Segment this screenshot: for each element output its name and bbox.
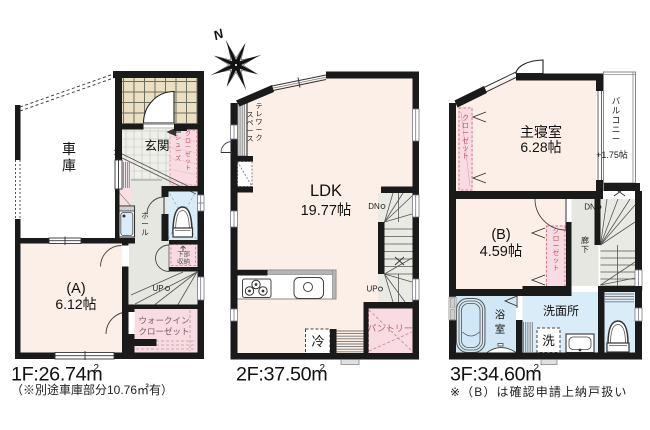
svg-text:ロ: ロ	[462, 123, 469, 130]
svg-text:+1.75帖: +1.75帖	[596, 149, 628, 160]
svg-text:19.77帖: 19.77帖	[301, 202, 352, 219]
svg-text:玄関: 玄関	[144, 138, 169, 153]
svg-text:ト: ト	[185, 166, 191, 172]
svg-text:ー: ー	[462, 130, 469, 137]
svg-text:コ: コ	[612, 115, 621, 125]
svg-text:ゼ: ゼ	[185, 150, 191, 158]
svg-text:※（B）は確認申請上納戸扱い: ※（B）は確認申請上納戸扱い	[450, 384, 627, 399]
svg-text:パントリー: パントリー	[367, 324, 412, 334]
svg-text:4.59帖: 4.59帖	[480, 243, 523, 260]
svg-text:ー: ー	[612, 134, 621, 144]
svg-text:ッ: ッ	[462, 145, 469, 152]
svg-text:シ: シ	[175, 136, 181, 142]
svg-text:ゼ: ゼ	[553, 248, 560, 257]
svg-text:ク: ク	[256, 134, 263, 142]
svg-text:ペ: ペ	[247, 119, 254, 127]
svg-text:2: 2	[94, 363, 100, 374]
svg-text:室: 室	[495, 323, 506, 336]
svg-text:テ: テ	[256, 102, 263, 110]
svg-text:6.12帖: 6.12帖	[55, 296, 96, 312]
svg-text:UP: UP	[152, 284, 163, 293]
svg-text:バ: バ	[612, 96, 621, 106]
svg-text:クローゼット: クローゼット	[138, 327, 189, 337]
svg-text:ル: ル	[612, 106, 621, 116]
svg-text:DN: DN	[368, 202, 380, 211]
svg-text:ロ: ロ	[553, 235, 560, 242]
svg-text:2: 2	[320, 363, 326, 374]
svg-text:下部: 下部	[177, 249, 191, 258]
svg-text:ー: ー	[256, 127, 263, 134]
svg-text:ズ: ズ	[175, 154, 181, 162]
svg-text:ー: ー	[553, 243, 560, 250]
svg-text:ル: ル	[141, 228, 149, 237]
svg-text:ュ: ュ	[175, 143, 181, 149]
svg-text:下: 下	[581, 245, 589, 254]
svg-text:ニ: ニ	[612, 125, 621, 135]
svg-text:（※別途車庫部分10.76㎡有）: （※別途車庫部分10.76㎡有）	[11, 382, 173, 397]
svg-text:洗: 洗	[542, 334, 555, 348]
svg-text:廊: 廊	[581, 235, 589, 245]
svg-text:洗面所: 洗面所	[543, 304, 579, 318]
svg-text:2F:37.50m: 2F:37.50m	[236, 364, 327, 386]
svg-text:(B): (B)	[491, 227, 510, 243]
svg-text:ロ: ロ	[185, 139, 191, 145]
svg-text:ク: ク	[462, 114, 469, 122]
svg-text:UP: UP	[366, 285, 377, 294]
svg-text:ス: ス	[247, 111, 254, 119]
svg-text:浴: 浴	[495, 309, 506, 321]
svg-text:ー: ー	[185, 146, 191, 152]
svg-text:(A): (A)	[66, 281, 85, 297]
svg-text:3F:34.60m: 3F:34.60m	[450, 364, 541, 386]
svg-text:レ: レ	[256, 111, 263, 118]
svg-text:ウォークイン: ウォークイン	[138, 316, 189, 326]
svg-text:収納: 収納	[177, 257, 190, 266]
svg-text:ワ: ワ	[256, 118, 263, 126]
svg-text:車: 車	[62, 141, 76, 157]
svg-text:ッ: ッ	[553, 258, 560, 265]
svg-text:冷: 冷	[311, 334, 324, 349]
svg-text:ト: ト	[553, 265, 560, 272]
svg-text:ー: ー	[247, 128, 254, 135]
svg-text:ゼ: ゼ	[462, 136, 469, 145]
svg-text:ス: ス	[247, 135, 254, 143]
svg-text:主寝室: 主寝室	[520, 124, 562, 140]
svg-text:LDK: LDK	[310, 182, 342, 200]
svg-text:ク: ク	[185, 131, 191, 138]
svg-text:ト: ト	[462, 153, 469, 160]
svg-text:ッ: ッ	[185, 159, 191, 165]
svg-text:2: 2	[534, 363, 540, 374]
svg-text:ー: ー	[175, 150, 181, 156]
svg-text:庫: 庫	[62, 158, 76, 174]
svg-text:6.28帖: 6.28帖	[520, 139, 561, 155]
svg-text:DN: DN	[584, 203, 596, 212]
